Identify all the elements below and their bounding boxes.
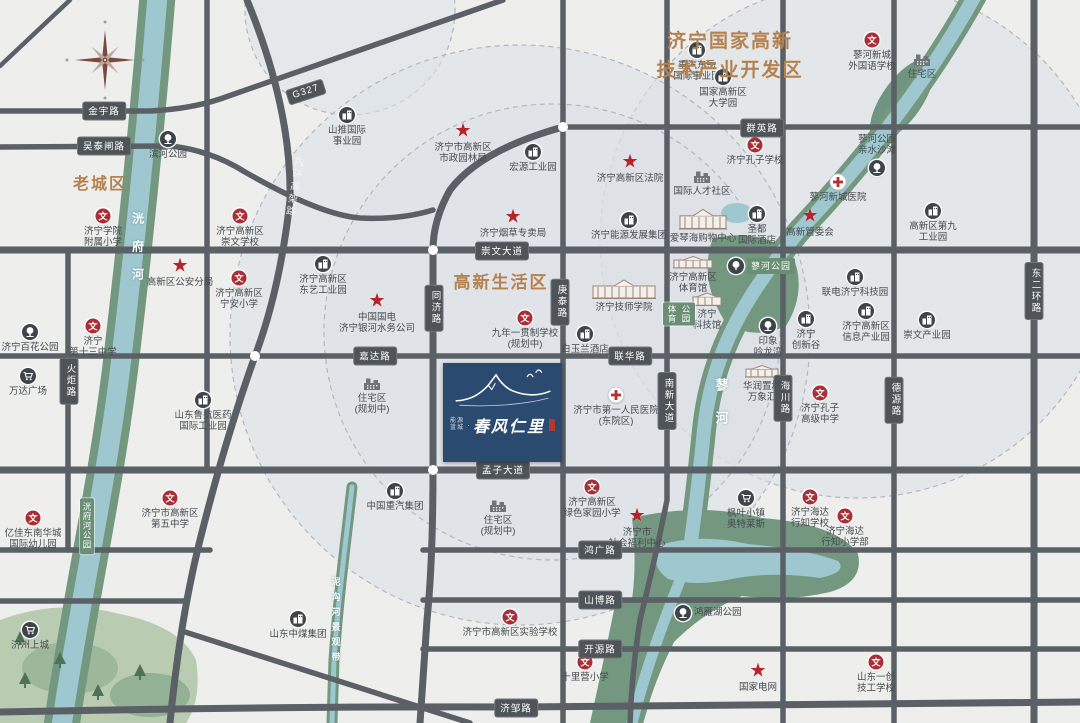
road-badge: 孟子大道 [477, 462, 529, 479]
marker-label: 济宁市高新区实验学校 [462, 627, 557, 638]
building-icon [749, 206, 765, 222]
marker-label: 高新区第九 工业园 [909, 221, 957, 244]
marker-label: 万达广场 [9, 386, 47, 397]
marker-label: 山东中煤集团 [269, 629, 326, 640]
shopping-cart-icon [738, 490, 754, 506]
building-icon [847, 269, 863, 285]
marker-label: 中国国电 济宁银河水务公司 [339, 312, 415, 335]
marker-label: 宏源工业园 [509, 162, 557, 173]
marker-label: 济宁高新区 崇文学校 [216, 226, 264, 249]
school-wen-icon: 文 [26, 511, 41, 526]
marker-label: 蓼河公园 亲水沙滩 [858, 134, 896, 157]
star-icon: ★ [749, 662, 766, 681]
school-wen-icon: 文 [869, 655, 884, 670]
marker-label: 国家高新区 大学园 [699, 87, 747, 110]
park-icon [760, 318, 776, 334]
school-wen-icon: 文 [503, 610, 518, 625]
building-icon [621, 212, 637, 228]
road-badge: 德源路 [886, 378, 903, 423]
building-icon [290, 611, 306, 627]
marker-label: 印象 吟龙湾 [754, 336, 783, 359]
building-icon [525, 144, 541, 160]
building-sketch-icon [692, 292, 722, 306]
river-name: 蓼河 [712, 378, 731, 444]
school-wen-icon: 文 [748, 138, 763, 153]
marker-label: 住宅区 (规划中) [481, 515, 516, 538]
road-badge: 同济路 [426, 286, 443, 331]
road-name: 内环高架路 [281, 155, 306, 219]
road-badge: 吴泰闸路 [78, 138, 130, 155]
marker-label: 济宁 第十三中学 [69, 336, 117, 359]
hospital-cross-icon [609, 388, 624, 403]
brand-separator: · [467, 420, 470, 430]
park-badge: 蓼河公园 [728, 258, 795, 274]
map-overlay: 文济宁学院 附属小学文济宁高新区 崇文学校文济宁高新区 宁安小学文济宁 第十三中… [0, 0, 1080, 723]
school-wen-icon: 文 [86, 319, 101, 334]
project-marker[interactable]: 能源 蓝城 · 春风仁里 [443, 363, 562, 462]
marker-label: 高新管委会 [786, 227, 834, 238]
building-icon [195, 392, 211, 408]
school-wen-icon: 文 [585, 480, 600, 495]
school-wen-icon: 文 [838, 509, 853, 524]
marker-label: 济州上城 [11, 640, 49, 651]
marker-label: 蓼河新城医院 [809, 192, 866, 203]
hospital-cross-icon [831, 175, 846, 190]
star-icon: ★ [621, 153, 638, 172]
marker-label: 联电济宁科技园 [822, 287, 889, 298]
marker-label: 国家电网 [739, 682, 777, 693]
residence-building-icon [693, 170, 711, 184]
shopping-cart-icon [22, 622, 38, 638]
road-badge: 庚泰路 [552, 280, 569, 325]
school-wen-icon: 文 [233, 209, 248, 224]
marker-label: 济宁市高新区 第五中学 [141, 508, 198, 531]
residence-building-icon [913, 53, 931, 67]
location-map: 济宁国家高新 技术产业开发区 能源 蓝城 · 春风仁里 文济宁学院 附属小学文济… [0, 0, 1080, 723]
marker-label: 崇文产业园 [903, 330, 951, 341]
marker-label: 高新区公安分局 [147, 277, 214, 288]
building-icon [315, 256, 331, 272]
marker-label: 山东鲁抗医药 国际工业园 [174, 410, 231, 433]
building-icon [577, 326, 593, 342]
school-wen-icon: 文 [813, 386, 828, 401]
star-icon: ★ [628, 507, 645, 526]
marker-label: 济宁孔子学校 [726, 155, 783, 166]
marker-label: 济宁高新区 体育馆 [669, 272, 717, 295]
marker-label: 滨河公园 [149, 149, 187, 160]
residence-building-icon [489, 499, 507, 513]
marker-label: 济宁市高新区 市政园林局 [434, 142, 491, 165]
marker-label: 济宁百花公园 [1, 342, 58, 353]
road-badge: 济邹路 [495, 700, 537, 717]
residence-building-icon [363, 377, 381, 391]
park-icon [728, 258, 744, 274]
building-sketch-icon [745, 365, 779, 378]
road-badge: 鸿广路 [579, 542, 621, 559]
road-badge: 群英路 [741, 120, 783, 137]
mountain-logo-icon [451, 363, 555, 411]
area-label: 老城区 [73, 170, 127, 194]
marker-label: 枫叶小镇 奥特莱斯 [727, 508, 765, 531]
marker-label: 济宁高新区 东艺工业园 [299, 274, 347, 297]
marker-label: 中国重汽集团 [366, 501, 423, 512]
marker-label: 十里营小学 [561, 672, 609, 683]
building-icon [858, 303, 874, 319]
marker-label: 济宁烟草专卖局 [480, 228, 547, 239]
marker-label: 亿佳东南华城 国际幼儿园 [4, 528, 61, 551]
park-icon [675, 605, 691, 621]
star-icon: ★ [368, 292, 385, 311]
park-icon [869, 160, 885, 176]
park-badge: 体育公园 [663, 303, 695, 326]
brand-small-label: 能源 蓝城 [450, 418, 464, 433]
marker-label: 圣都 国际酒店 [738, 224, 776, 247]
marker-label: 九年一贯制学校 (规划中) [492, 328, 559, 351]
marker-label: 住宅区 [908, 69, 937, 80]
marker-label: 爱琴海购物中心 [670, 233, 737, 244]
river-name: 泥沟河景观带 [330, 577, 343, 667]
building-icon [387, 483, 403, 499]
marker-label: 济宁能源发展集团 [591, 230, 667, 241]
road-badge: G327 [286, 80, 326, 105]
road-badge: 东二环路 [1026, 263, 1043, 319]
marker-label: 山推国际 事业园 [328, 125, 366, 148]
marker-label: 济宁市第一人民医院 (东院区) [573, 405, 659, 428]
marker-label: 济宁孔子 高级中学 [801, 403, 839, 426]
building-icon [798, 311, 814, 327]
park-icon [160, 131, 176, 147]
district-title: 济宁国家高新 技术产业开发区 [656, 28, 803, 85]
marker-label: 济宁 创新谷 [792, 329, 821, 352]
school-wen-icon: 文 [96, 209, 111, 224]
marker-label: 济宁高新区 信息产业园 [842, 321, 890, 344]
road-badge: 火炬路 [61, 359, 78, 404]
road-badge: 山博路 [579, 592, 621, 609]
road-badge: 金宇路 [83, 103, 125, 120]
road-badge: 嘉达路 [354, 348, 396, 365]
school-wen-icon: 文 [163, 491, 178, 506]
building-icon [925, 203, 941, 219]
marker-label: 济宁高新区法院 [597, 173, 664, 184]
shopping-cart-icon [20, 368, 36, 384]
project-name: 春风仁里 [473, 413, 545, 437]
building-icon [919, 312, 935, 328]
road-badge: 开源路 [579, 641, 621, 658]
star-icon: ★ [171, 257, 188, 276]
marker-label: 济宁海达 行知小学部 [821, 526, 869, 549]
marker-label: 山东一创 技工学校 [857, 672, 895, 695]
building-sketch-icon [679, 209, 727, 230]
marker-label: 国际人才社区 [673, 186, 730, 197]
star-icon: ★ [454, 122, 471, 141]
marker-label: 白玉兰酒店 [561, 344, 609, 355]
road-badge: 海川路 [775, 376, 792, 421]
marker-label: 济宁 科技馆 [693, 309, 722, 332]
road-badge: 崇文大道 [476, 243, 528, 260]
school-wen-icon: 文 [865, 33, 880, 48]
marker-label: 住宅区 (规划中) [355, 393, 390, 416]
school-wen-icon: 文 [803, 490, 818, 505]
marker-label: 鸿雁湖公园 [694, 607, 742, 618]
marker-label: 济宁高新区 绿色家园小学 [563, 497, 620, 520]
building-sketch-icon [673, 256, 713, 269]
marker-label: 济宁高新区 宁安小学 [215, 288, 263, 311]
school-wen-icon: 文 [232, 271, 247, 286]
star-icon: ★ [504, 208, 521, 227]
brand-seal [549, 419, 555, 431]
marker-label: 济宁技师学院 [595, 302, 652, 313]
building-icon [339, 107, 355, 123]
park-badge: 洸府河公园 [80, 498, 94, 554]
river-name: 洸府河 [130, 212, 147, 296]
area-label: 高新生活区 [454, 268, 549, 293]
road-badge: 南新大道 [659, 373, 676, 429]
marker-label: 济宁学院 附属小学 [84, 226, 122, 249]
park-icon [22, 324, 38, 340]
marker-label: 蓼河新城 外国语学校 [848, 50, 896, 73]
star-icon: ★ [801, 207, 818, 226]
building-sketch-icon [592, 279, 656, 299]
road-badge: 联华路 [609, 348, 651, 365]
school-wen-icon: 文 [518, 311, 533, 326]
